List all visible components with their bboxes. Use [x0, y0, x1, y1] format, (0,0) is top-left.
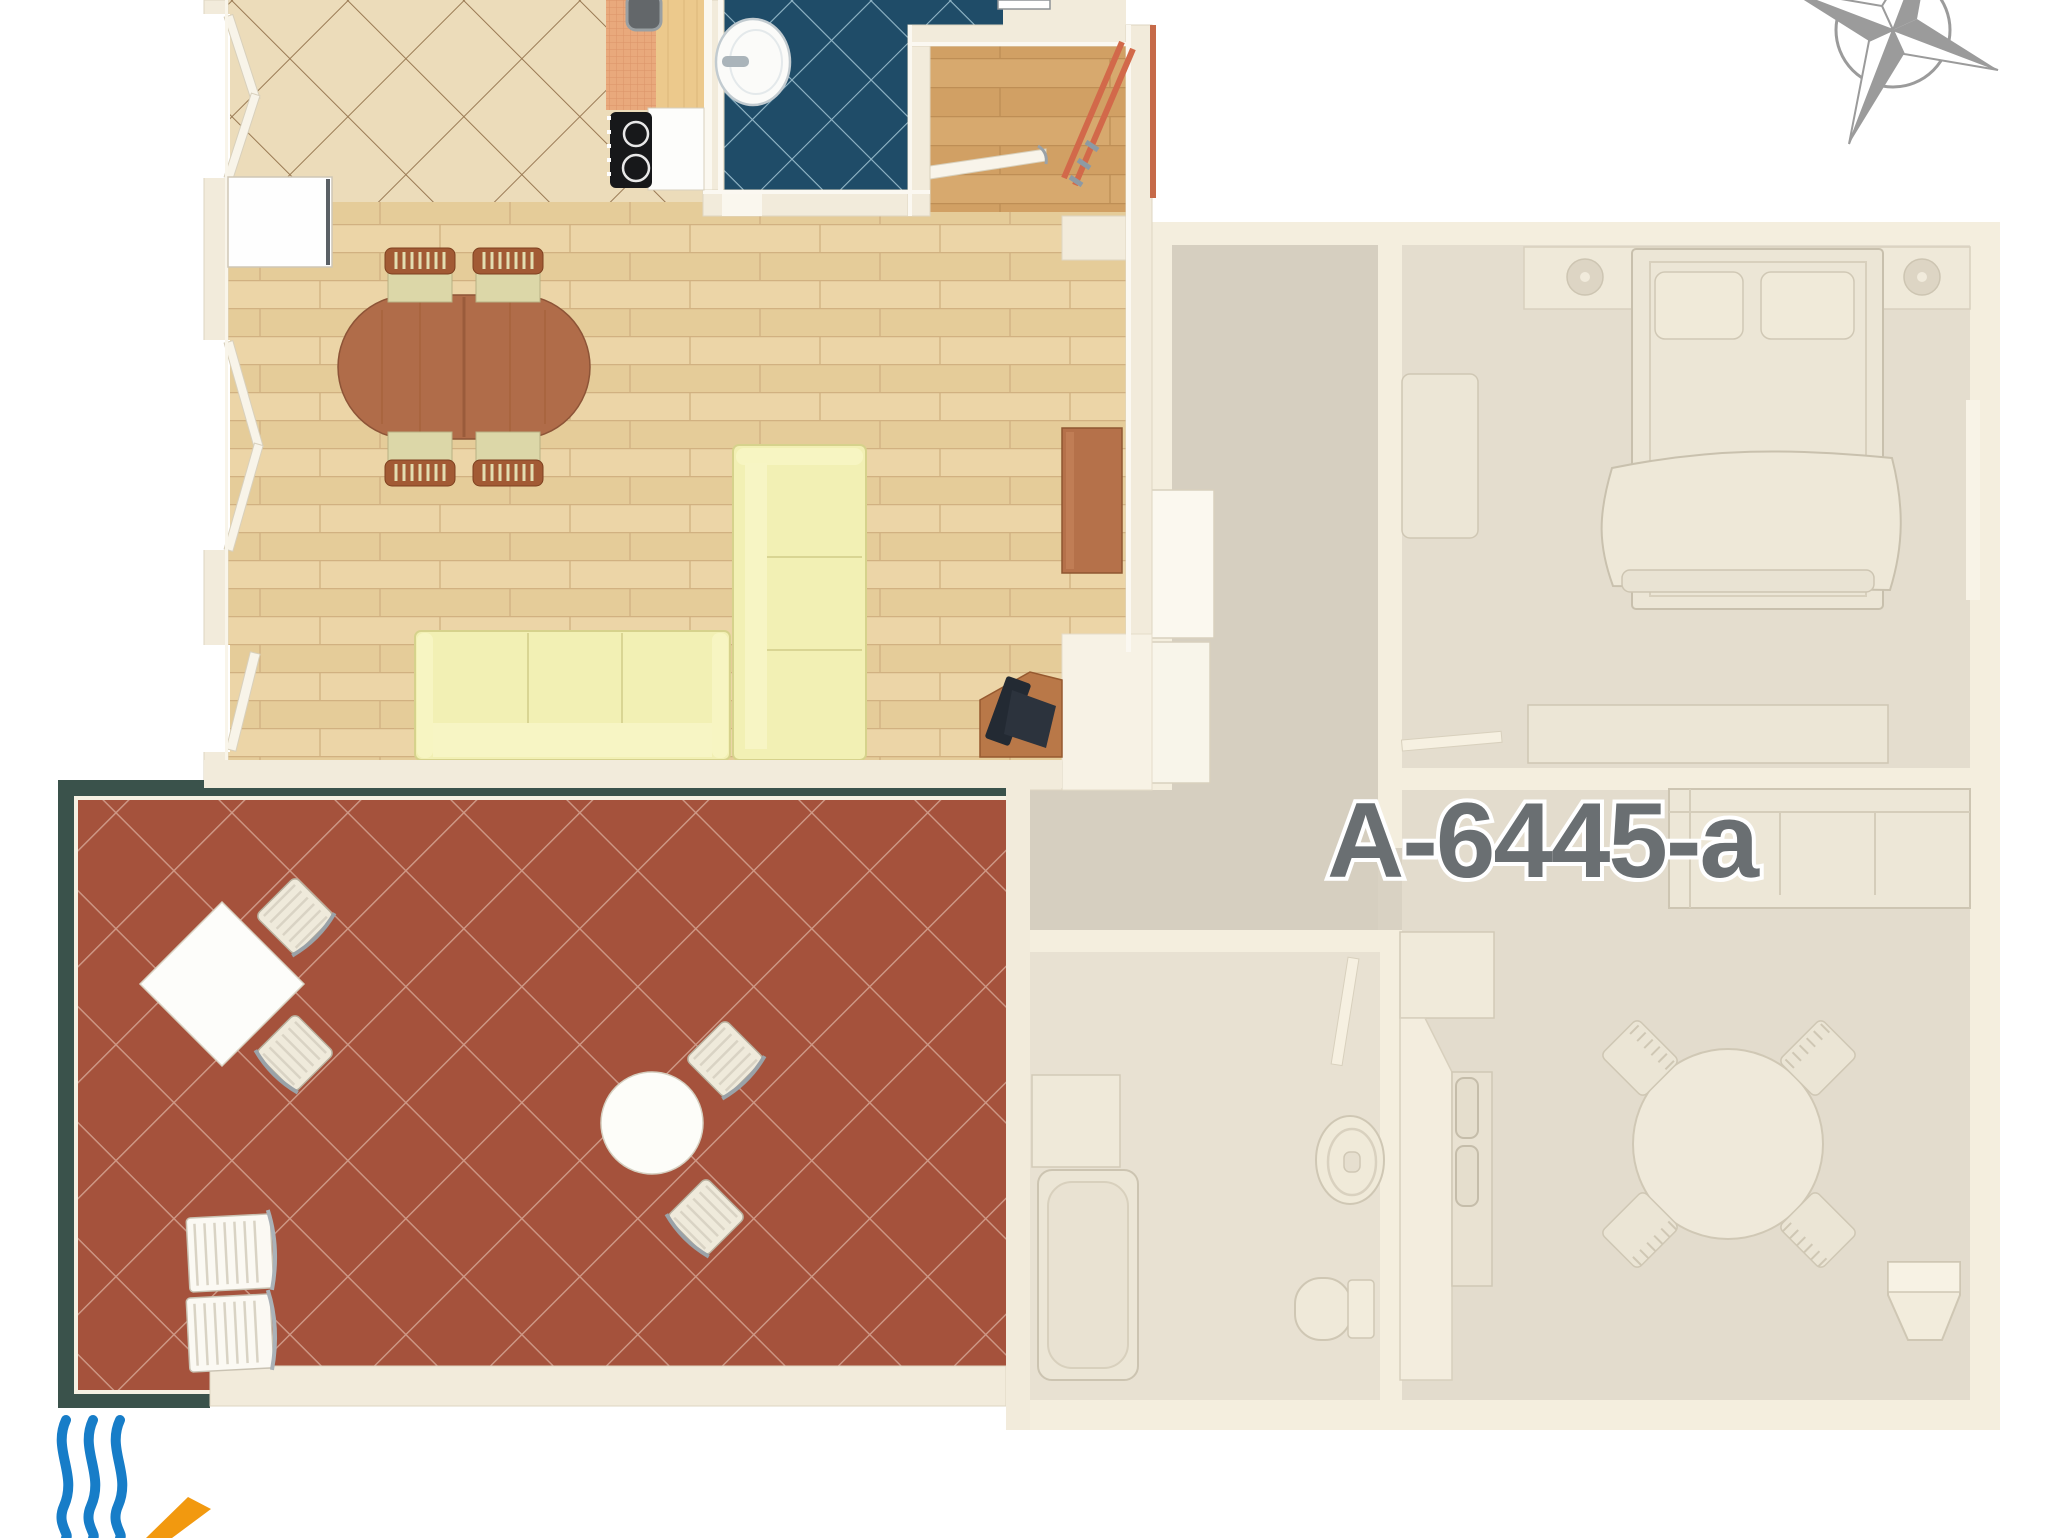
svg-text:A-6445-a: A-6445-a: [1327, 780, 1761, 900]
